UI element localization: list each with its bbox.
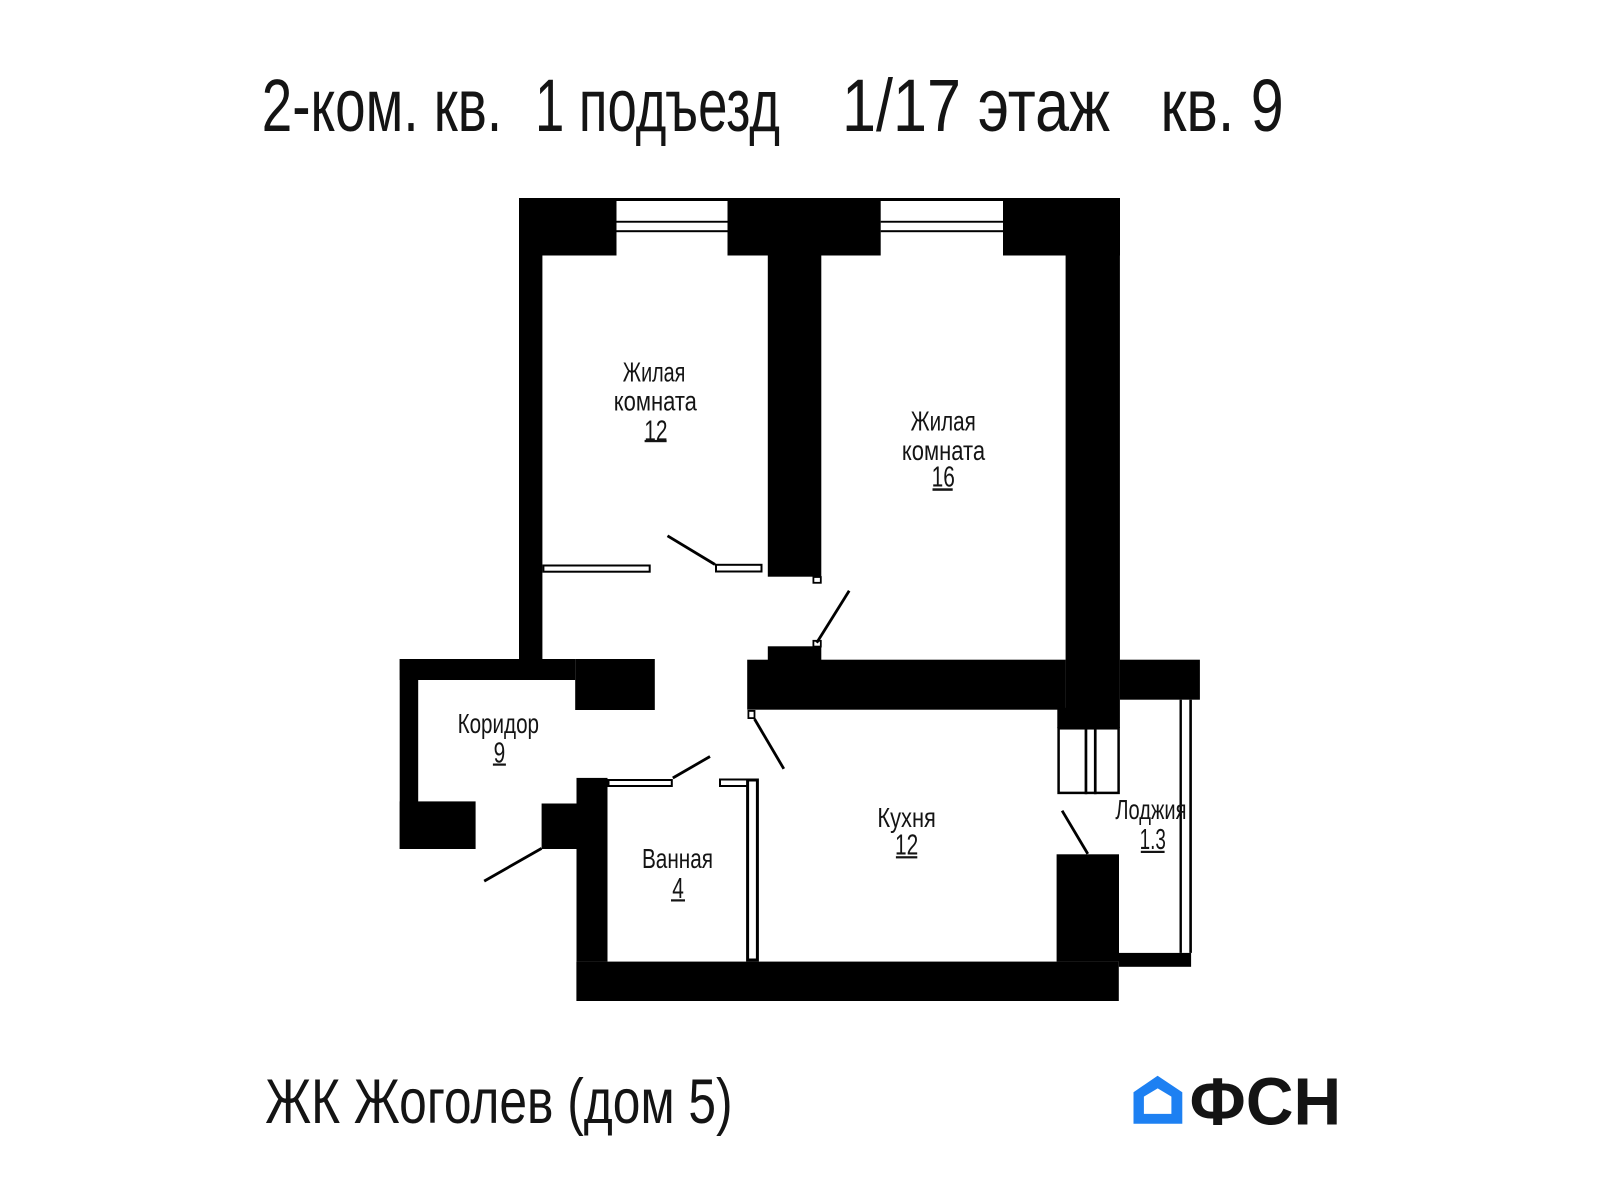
svg-text:2-ком. кв.: 2-ком. кв. <box>262 64 502 147</box>
svg-text:Лоджия: Лоджия <box>1115 795 1186 826</box>
svg-text:Ванная: Ванная <box>642 844 713 874</box>
svg-text:Коридор: Коридор <box>458 709 539 740</box>
svg-text:ЖК Жоголев (дом 5): ЖК Жоголев (дом 5) <box>265 1067 732 1137</box>
svg-text:1 подъезд: 1 подъезд <box>535 64 780 147</box>
svg-text:ФСН: ФСН <box>1190 1065 1342 1140</box>
svg-text:Жилая: Жилая <box>911 407 976 438</box>
svg-text:кв. 9: кв. 9 <box>1161 65 1284 148</box>
svg-text:Жилая: Жилая <box>623 357 686 388</box>
svg-text:1/17 этаж: 1/17 этаж <box>842 66 1110 148</box>
svg-text:12: 12 <box>644 415 667 447</box>
svg-text:комната: комната <box>614 386 697 417</box>
